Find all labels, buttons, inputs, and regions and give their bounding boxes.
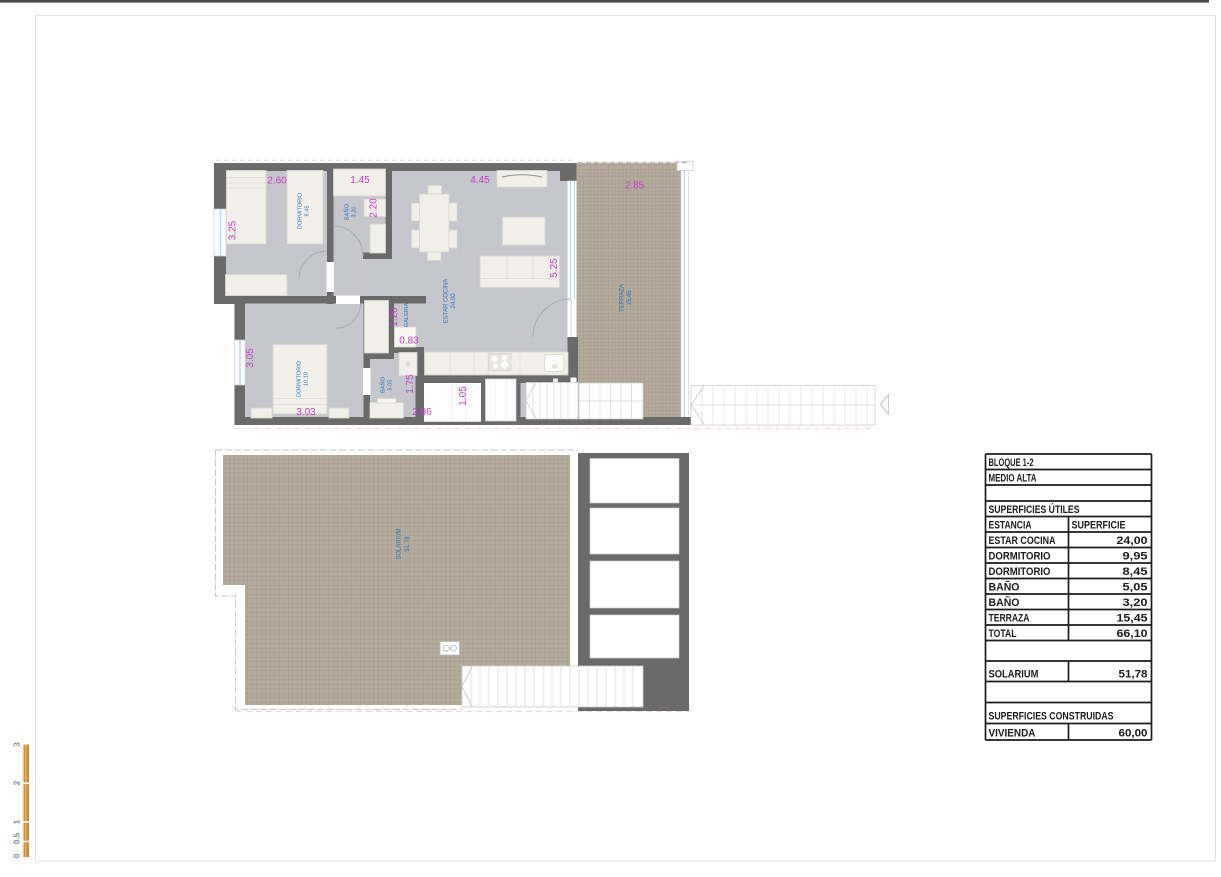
- svg-text:DORMITORIO: DORMITORIO: [297, 360, 303, 397]
- svg-text:BAÑO: BAÑO: [344, 203, 351, 220]
- svg-text:ESTAR COCINA: ESTAR COCINA: [989, 535, 1056, 547]
- svg-text:0.5: 0.5: [13, 832, 22, 844]
- svg-text:1.05: 1.05: [458, 386, 469, 406]
- svg-text:24,00: 24,00: [1117, 535, 1148, 547]
- svg-text:3.25: 3.25: [228, 220, 239, 240]
- svg-text:SUPERFICIE: SUPERFICIE: [1072, 520, 1126, 532]
- svg-text:TOTAL: TOTAL: [989, 628, 1017, 640]
- svg-text:5,05: 5,05: [1123, 582, 1148, 594]
- svg-text:VIVIENDA: VIVIENDA: [989, 728, 1036, 740]
- svg-text:0: 0: [13, 853, 22, 858]
- svg-text:3.03: 3.03: [296, 407, 316, 418]
- svg-text:8,45: 8,45: [1123, 566, 1148, 578]
- svg-text:51.78: 51.78: [405, 536, 411, 552]
- svg-text:8.45: 8.45: [305, 206, 311, 217]
- svg-text:0.83: 0.83: [399, 336, 419, 347]
- svg-text:MEDIO ALTA: MEDIO ALTA: [989, 473, 1037, 485]
- svg-text:SUPERFICIES CONSTRUIDAS: SUPERFICIES CONSTRUIDAS: [989, 711, 1114, 723]
- svg-text:ESTANCIA: ESTANCIA: [989, 520, 1032, 532]
- svg-text:2.20: 2.20: [369, 198, 380, 218]
- svg-text:3,20: 3,20: [1123, 597, 1148, 609]
- svg-text:5.25: 5.25: [549, 258, 560, 278]
- svg-text:SUPERFICIES ÚTILES: SUPERFICIES ÚTILES: [989, 503, 1080, 516]
- svg-text:2: 2: [13, 780, 22, 785]
- svg-text:ESTAR COCINA: ESTAR COCINA: [444, 279, 450, 324]
- svg-text:60,00: 60,00: [1119, 728, 1148, 740]
- svg-text:10.10: 10.10: [304, 372, 310, 386]
- svg-text:TERRAZA: TERRAZA: [620, 284, 626, 312]
- svg-text:5.05: 5.05: [388, 380, 394, 391]
- svg-text:DORMITORIO: DORMITORIO: [298, 192, 304, 229]
- svg-text:1.75: 1.75: [405, 374, 416, 394]
- svg-text:2.85: 2.85: [625, 181, 645, 192]
- svg-text:3: 3: [13, 742, 22, 747]
- svg-text:BAÑO: BAÑO: [989, 581, 1020, 594]
- svg-text:SOLARIUM: SOLARIUM: [397, 528, 403, 559]
- svg-text:9,95: 9,95: [1123, 551, 1148, 563]
- svg-text:SOLARIUM: SOLARIUM: [989, 669, 1039, 681]
- svg-text:1.20: 1.20: [389, 307, 400, 327]
- svg-text:15.45: 15.45: [627, 290, 633, 306]
- svg-text:BLOQUE 1-2: BLOQUE 1-2: [989, 457, 1034, 469]
- svg-text:1: 1: [13, 819, 22, 824]
- svg-text:BAÑO: BAÑO: [380, 376, 387, 393]
- svg-text:TERRAZA: TERRAZA: [989, 613, 1030, 625]
- svg-text:GALERIA: GALERIA: [404, 303, 410, 328]
- svg-text:DORMITORIO: DORMITORIO: [989, 551, 1051, 563]
- svg-text:24.00: 24.00: [451, 293, 457, 309]
- svg-text:3.05: 3.05: [245, 348, 256, 368]
- svg-text:15,45: 15,45: [1117, 613, 1148, 625]
- svg-text:66,10: 66,10: [1117, 628, 1148, 640]
- svg-text:BAÑO: BAÑO: [989, 596, 1020, 609]
- svg-text:51,78: 51,78: [1119, 669, 1148, 681]
- svg-text:2.96: 2.96: [412, 407, 432, 418]
- svg-text:DORMITORIO: DORMITORIO: [989, 566, 1051, 578]
- svg-text:4.45: 4.45: [470, 175, 490, 186]
- svg-text:3.20: 3.20: [352, 207, 358, 218]
- svg-text:1.45: 1.45: [350, 175, 370, 186]
- svg-text:2.60: 2.60: [267, 176, 287, 187]
